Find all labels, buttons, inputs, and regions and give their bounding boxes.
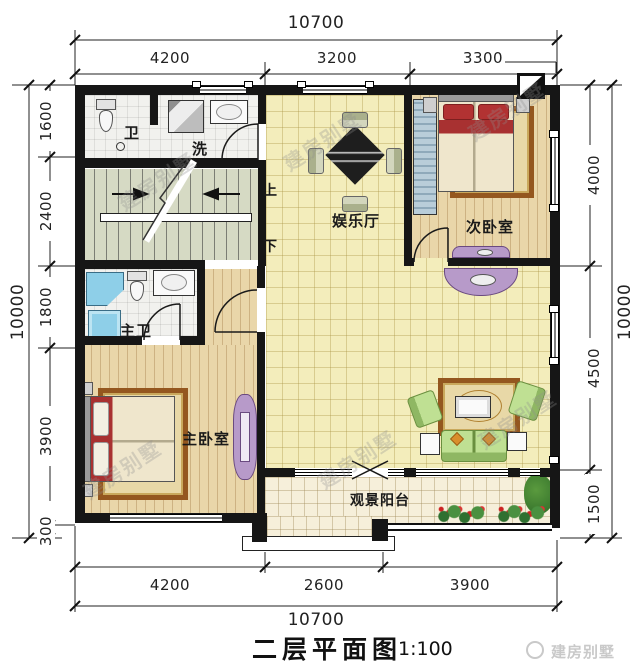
floor-plan: 卫 洗 娱乐厅 次卧室 主卫 主卧室 观景阳台 上 下 10700 4200 3… — [0, 0, 640, 669]
room-label-bedroom2: 次卧室 — [466, 216, 514, 237]
dim-label-top-seg: 3300 — [443, 49, 523, 67]
dim-label-left-seg: 1600 — [37, 91, 55, 151]
dim-label-top-seg: 4200 — [130, 49, 210, 67]
page-title: 二层平面图 — [250, 630, 404, 669]
dim-label-left-seg: 1800 — [37, 277, 55, 337]
room-label-bathroom: 卫 — [124, 122, 140, 143]
dim-label-left-seg: 300 — [37, 501, 55, 561]
dim-label-bottom-total: 10700 — [276, 610, 356, 630]
dim-label-right-seg: 1500 — [585, 474, 603, 534]
room-label-master-bedroom: 主卧室 — [182, 428, 230, 449]
dim-label-left-seg: 2400 — [37, 181, 55, 241]
stairs-up-label: 上 — [263, 180, 278, 200]
dim-label-bottom-seg: 3900 — [430, 576, 510, 594]
dim-label-top-total: 10700 — [276, 13, 356, 33]
room-label-master-bath: 主卫 — [120, 320, 152, 341]
brand-logo-text: 建房别墅 — [551, 641, 615, 662]
room-label-balcony: 观景阳台 — [350, 490, 410, 510]
stairs-down-label: 下 — [263, 236, 278, 256]
room-label-laundry: 洗 — [192, 138, 208, 159]
dim-label-right-seg: 4500 — [585, 338, 603, 398]
drawing-scale: 1:100 — [398, 638, 453, 660]
dim-label-bottom-seg: 4200 — [130, 576, 210, 594]
dim-label-top-seg: 3200 — [297, 49, 377, 67]
room-label-hall: 娱乐厅 — [332, 210, 380, 231]
dim-label-right-total: 10000 — [616, 282, 634, 342]
dim-label-left-total: 10000 — [9, 282, 27, 342]
dim-label-left-seg: 3900 — [37, 406, 55, 466]
brand-logo-icon — [526, 641, 544, 659]
dim-label-right-seg: 4000 — [585, 145, 603, 205]
dim-label-bottom-seg: 2600 — [284, 576, 364, 594]
